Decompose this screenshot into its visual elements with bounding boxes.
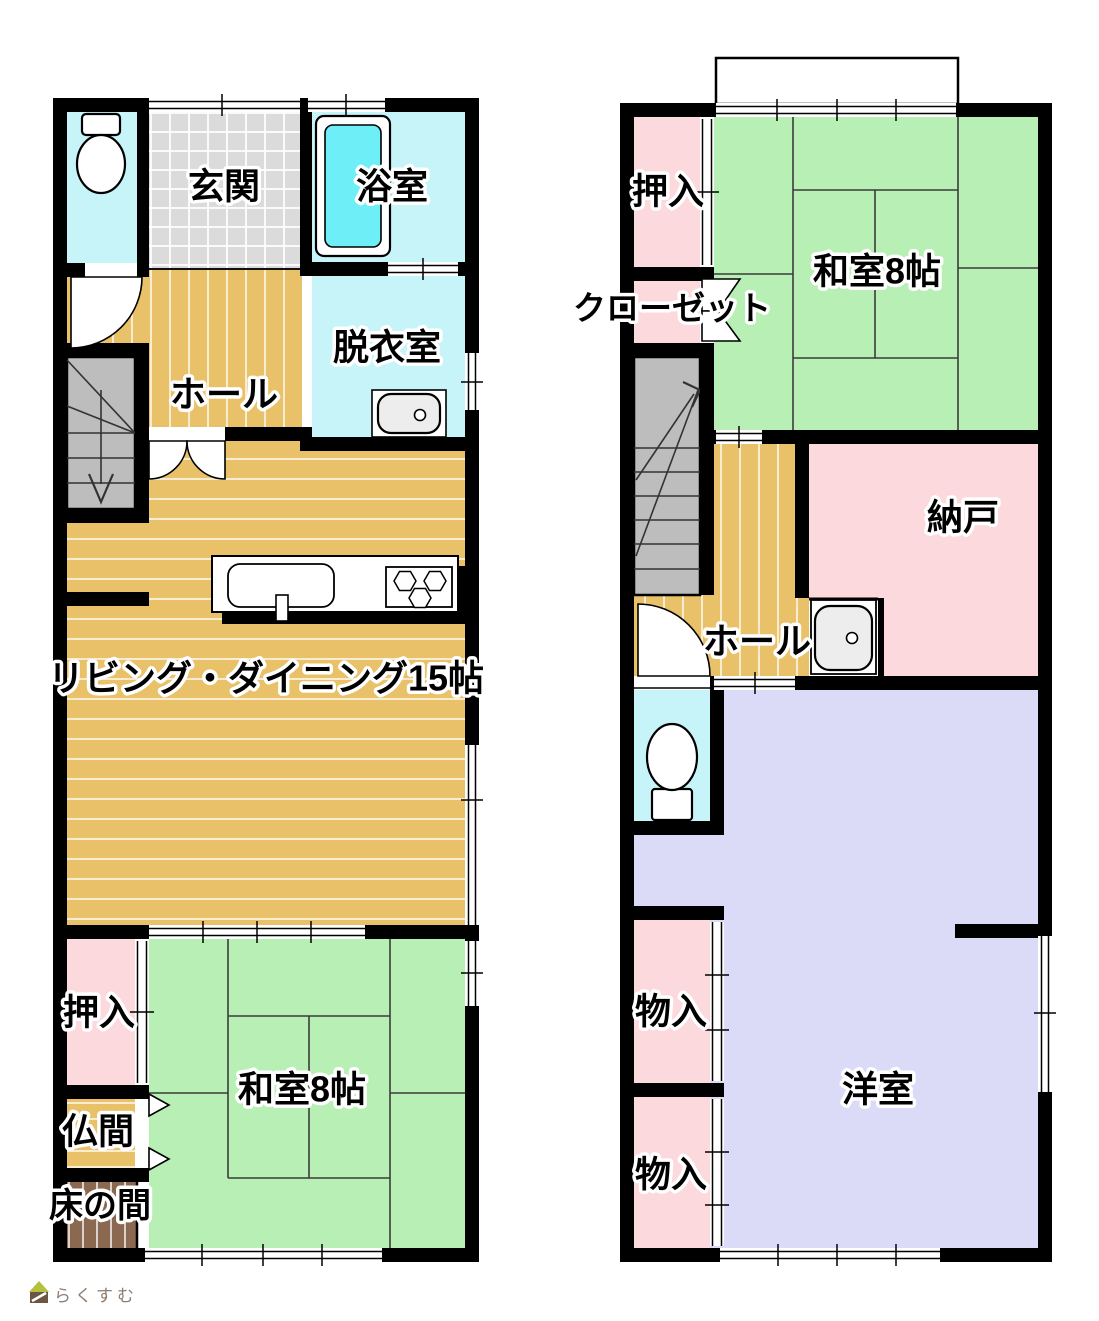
balcony (716, 58, 958, 104)
label-closet: クローゼット (573, 290, 771, 327)
label-washitsu2: 和室8帖 (813, 251, 941, 292)
floorplan-svg: 玄関 浴室 脱衣室 ホール リビング・ダイニング15帖 押入 和室8帖 仏間 床… (0, 0, 1099, 1321)
brand-logo-icon (29, 1281, 49, 1303)
washbasin-recess-2f (809, 598, 878, 676)
toilet-icon-1f (77, 114, 125, 193)
stairs-down (67, 357, 135, 509)
label-hall2: ホール (703, 621, 811, 662)
label-tokonoma: 床の間 (49, 1187, 151, 1225)
label-monoire-upper: 物入 (635, 991, 707, 1032)
label-youshitsu: 洋室 (842, 1069, 914, 1110)
washbasin-icon-2f (811, 600, 876, 674)
toilet-icon-2f (647, 724, 697, 820)
watermark: らくすむ (29, 1281, 138, 1306)
label-washitsu1: 和室8帖 (238, 1069, 366, 1110)
label-nando: 納戸 (927, 497, 999, 538)
label-genkan: 玄関 (188, 166, 260, 207)
label-butsuma: 仏間 (62, 1111, 134, 1152)
brand-name: らくすむ (54, 1287, 138, 1306)
label-bathroom: 浴室 (356, 166, 428, 207)
kitchen-faucet-icon (276, 595, 288, 621)
label-oshiire2: 押入 (632, 171, 704, 212)
stairs-up (634, 357, 700, 595)
floorplan: 玄関 浴室 脱衣室 ホール リビング・ダイニング15帖 押入 和室8帖 仏間 床… (0, 0, 1099, 1321)
label-hall1: ホール (170, 374, 278, 415)
toilet2-doorway (634, 676, 710, 688)
room-toilet2 (634, 690, 710, 821)
toilet1-door-gap (85, 263, 137, 277)
stove-icon (386, 567, 452, 608)
floor1-plan: 玄関 浴室 脱衣室 ホール リビング・ダイニング15帖 押入 和室8帖 仏間 床… (48, 94, 484, 1266)
floor2-plan: 押入 和室8帖 クローゼット 納戸 ホール 物入 物入 洋室 (573, 58, 1056, 1266)
washbasin-icon-1f (372, 390, 446, 437)
label-dressing: 脱衣室 (333, 327, 441, 368)
kitchen-counter (212, 556, 465, 624)
label-oshiire1: 押入 (63, 992, 135, 1033)
label-monoire-lower: 物入 (635, 1154, 707, 1195)
hall-ld-door-gap (149, 427, 225, 441)
label-living-dining: リビング・ダイニング15帖 (48, 658, 484, 699)
butsuma-opening (135, 1099, 149, 1168)
